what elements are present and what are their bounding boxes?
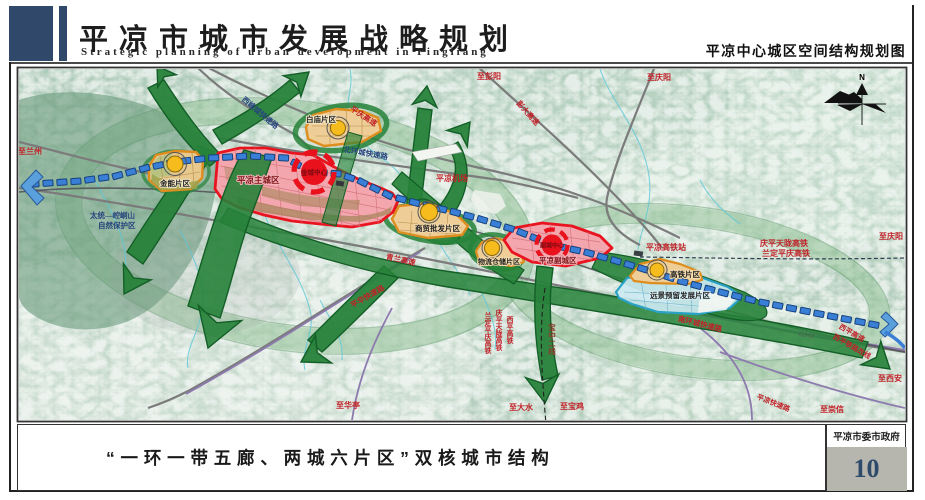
svg-text:兰定平庆高铁: 兰定平庆高铁 [762, 248, 810, 258]
svg-text:庆平天陇高铁: 庆平天陇高铁 [759, 238, 808, 248]
svg-text:至大水: 至大水 [509, 402, 534, 412]
svg-text:自然保护区: 自然保护区 [98, 220, 136, 230]
svg-text:至崇信: 至崇信 [820, 404, 844, 414]
svg-text:N: N [859, 73, 865, 82]
svg-text:至庆阳: 至庆阳 [647, 72, 671, 82]
svg-text:至庆阳: 至庆阳 [879, 231, 903, 241]
svg-text:至彭阳: 至彭阳 [477, 71, 501, 81]
svg-text:至宝鸡: 至宝鸡 [560, 401, 584, 411]
svg-text:高铁片区: 高铁片区 [670, 269, 700, 279]
svg-text:太统—崆峒山: 太统—崆峒山 [90, 210, 135, 220]
svg-text:宝中二线: 宝中二线 [548, 322, 556, 356]
svg-text:平凉机场: 平凉机场 [436, 173, 468, 183]
svg-text:至华亭: 至华亭 [336, 400, 360, 410]
svg-text:兰定平庆高铁: 兰定平庆高铁 [484, 311, 492, 355]
svg-text:至兰州: 至兰州 [18, 146, 42, 156]
svg-text:白庙片区: 白庙片区 [306, 114, 336, 124]
svg-text:至西安: 至西安 [878, 373, 902, 383]
svg-text:金能片区: 金能片区 [159, 178, 190, 188]
svg-text:副城中心: 副城中心 [540, 242, 564, 250]
svg-text:金城中心: 金城中心 [300, 168, 328, 177]
svg-text:平凉高铁站: 平凉高铁站 [646, 242, 686, 252]
svg-text:物流仓储片区: 物流仓储片区 [478, 257, 520, 266]
svg-text:平凉主城区: 平凉主城区 [237, 175, 280, 185]
svg-text:商贸批发片区: 商贸批发片区 [415, 223, 460, 233]
svg-text:庆平天陇高铁: 庆平天陇高铁 [495, 308, 503, 352]
svg-text:平凉副城区: 平凉副城区 [539, 255, 577, 265]
svg-text:西平高铁: 西平高铁 [506, 316, 514, 345]
svg-text:远景预留发展片区: 远景预留发展片区 [650, 290, 710, 300]
